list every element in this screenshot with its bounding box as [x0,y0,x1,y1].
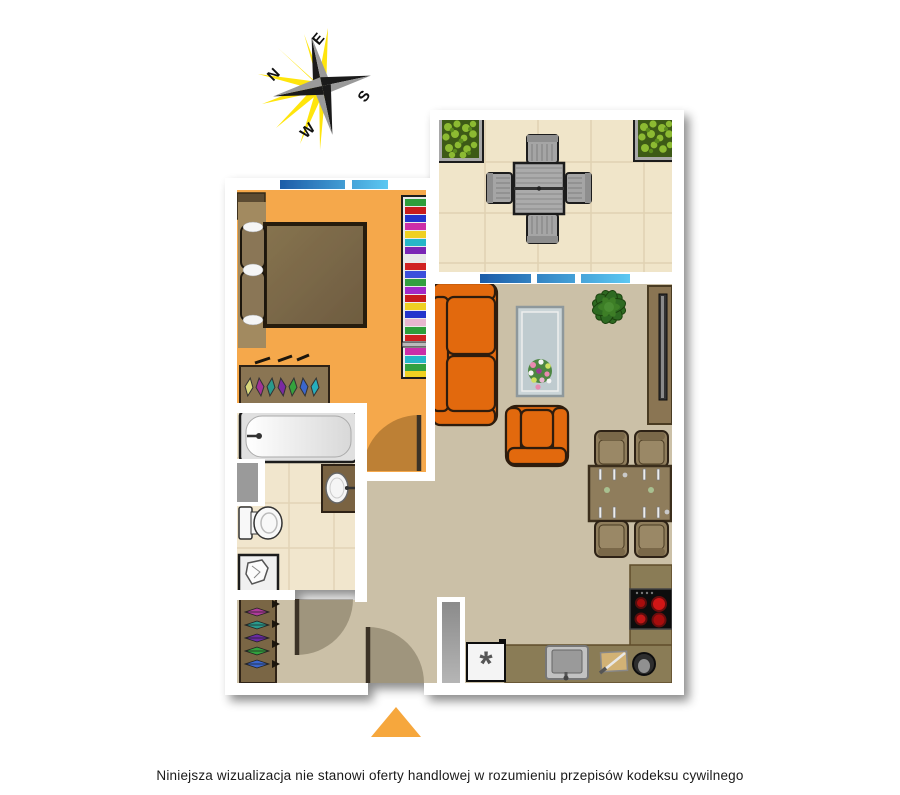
fridge: * [467,639,506,683]
burner [636,614,647,625]
dining-chair [635,431,668,467]
balcony-chair [527,214,558,243]
cutting-board [600,651,628,673]
wall-bathroom-east [355,403,367,602]
freezer-symbol: * [479,645,493,683]
book-spines [402,199,429,377]
wall-bedroom-living [426,284,435,481]
burner [636,598,646,608]
floor-plan-svg: * [0,0,900,795]
toilet [239,507,282,539]
kitchen-sink [546,646,588,681]
balcony-chair [566,173,591,203]
wall-nook-south [355,472,435,481]
wall-south-left [225,683,368,695]
compass-label-west: W [297,119,320,142]
bookshelf [402,196,429,378]
wall-east [672,110,684,695]
coffee-table [517,307,563,396]
hall-wardrobe [240,597,280,683]
wall-south-right [424,683,684,695]
compass-label-south: S [354,87,374,105]
stove-cooktop [630,589,672,629]
dining-chair [595,431,628,467]
burner [653,614,666,627]
bathroom-vanity-sink [322,465,357,512]
dining-chair [595,521,628,557]
pillow [241,271,265,321]
bathtub [240,411,357,462]
compass-rose: E N S W [258,27,381,150]
balcony-table [514,163,564,214]
armchair [506,406,568,466]
wall-niche [237,459,265,506]
apartment-plan: * [225,110,684,695]
burner [652,597,666,611]
wall-balcony-north [430,110,684,120]
bedroom-window [280,180,388,189]
balcony-planter [438,116,483,162]
pot [633,653,655,675]
compass-label-north: N [264,65,284,85]
legal-disclaimer-text: Niniejsza wizualizacja nie stanowi ofert… [0,768,900,783]
dining-chair [635,521,668,557]
entrance-arrow [371,707,421,737]
wall-bathroom-south [237,590,295,600]
wall-west [225,178,237,695]
balcony-chair [527,135,558,163]
floor-plan-page: * [0,0,900,795]
kitchen-partition-wall [437,597,465,683]
balcony-window-door [480,274,630,283]
wall-bedroom-bathroom [237,403,367,413]
wall-balcony-west [430,110,439,284]
laundry-basket [239,555,278,592]
balcony-chair [487,173,512,203]
sofa [432,283,497,425]
double-bed [241,222,367,328]
balcony-planter [634,116,678,161]
tv-unit [648,286,672,424]
